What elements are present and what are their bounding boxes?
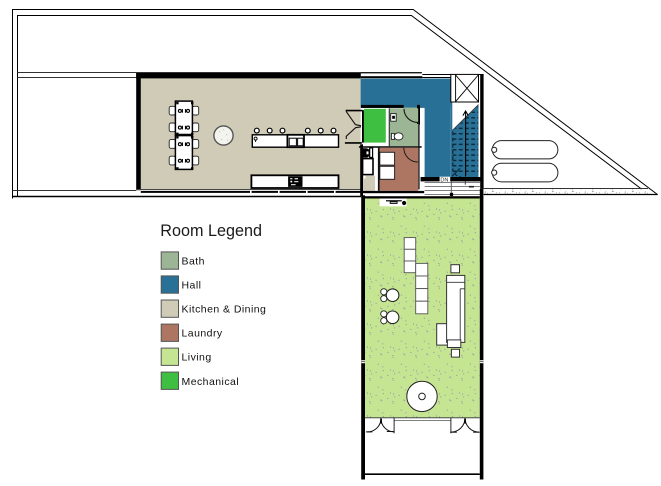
svg-text:Mechanical: Mechanical [182, 376, 240, 388]
svg-text:Living: Living [182, 352, 212, 364]
svg-text:Laundry: Laundry [182, 328, 223, 340]
svg-text:Room Legend: Room Legend [160, 222, 262, 240]
svg-text:Hall: Hall [182, 280, 202, 292]
svg-text:Kitchen & Dining: Kitchen & Dining [182, 304, 267, 316]
svg-text:Bath: Bath [182, 256, 205, 268]
